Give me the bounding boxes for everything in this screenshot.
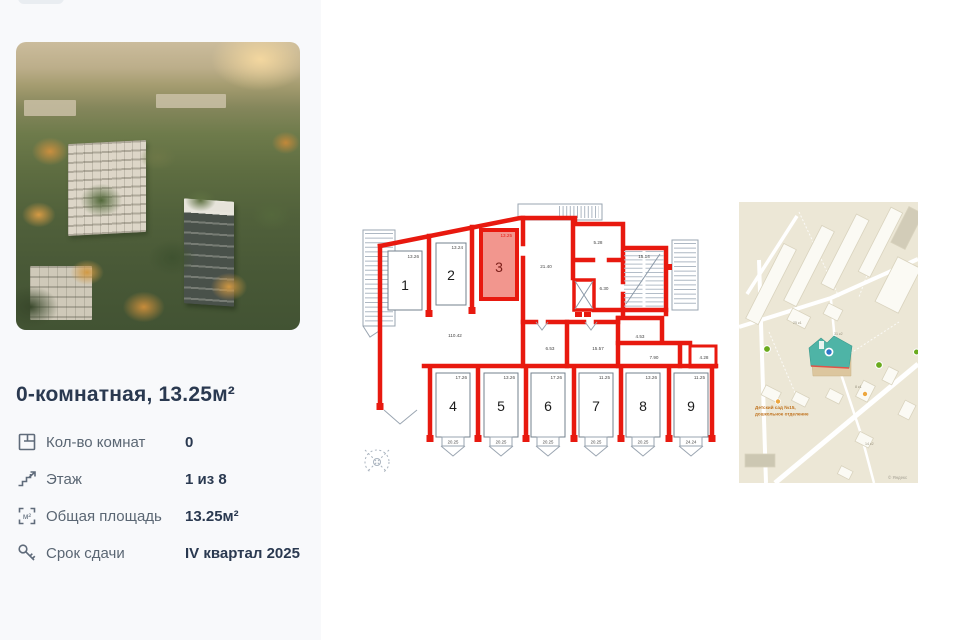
svg-text:6: 6 xyxy=(544,398,552,414)
photo-building-light xyxy=(68,140,146,236)
svg-text:6.30: 6.30 xyxy=(600,286,609,291)
svg-text:14 к2: 14 к2 xyxy=(865,442,874,446)
photo-distant-building xyxy=(24,100,76,116)
detail-label: Кол-во комнат xyxy=(46,434,145,451)
svg-text:4.53: 4.53 xyxy=(636,334,645,339)
svg-text:Детский сад №15,: Детский сад №15, xyxy=(755,404,796,410)
svg-text:110.42: 110.42 xyxy=(448,333,462,338)
svg-text:7: 7 xyxy=(592,398,600,414)
location-map[interactable]: Детский сад №15, дошкольное отделение 31… xyxy=(739,202,918,483)
detail-label: Общая площадь xyxy=(46,508,162,525)
area-icon: м² xyxy=(16,505,38,527)
photo-distant-building xyxy=(156,94,226,108)
svg-text:1: 1 xyxy=(401,277,409,293)
svg-text:13.26: 13.26 xyxy=(408,254,420,259)
svg-text:7.90: 7.90 xyxy=(650,355,659,360)
detail-row-rooms: Кол-во комнат 0 xyxy=(16,430,316,454)
svg-text:20.25: 20.25 xyxy=(638,440,649,445)
svg-text:8: 8 xyxy=(639,398,647,414)
detail-value: 13.25м² xyxy=(185,508,239,525)
detail-row-floor: Этаж 1 из 8 xyxy=(16,467,316,491)
svg-text:17.26: 17.26 xyxy=(551,375,563,380)
svg-text:4: 4 xyxy=(449,398,457,414)
key-icon xyxy=(16,542,38,564)
svg-text:5.28: 5.28 xyxy=(594,240,603,245)
page-title: 0-комнатная, 13.25м² xyxy=(16,383,316,407)
stair-core-icon xyxy=(626,251,660,307)
partial-button[interactable] xyxy=(18,0,64,4)
svg-text:31 к2: 31 к2 xyxy=(834,332,843,336)
rooms-icon xyxy=(16,431,38,453)
map-attribution: © Яндекс xyxy=(888,475,908,480)
detail-value: IV квартал 2025 xyxy=(185,545,300,562)
svg-text:20.25: 20.25 xyxy=(591,440,602,445)
svg-text:5: 5 xyxy=(497,398,505,414)
svg-text:25 к1: 25 к1 xyxy=(793,321,802,325)
svg-text:21.40: 21.40 xyxy=(540,264,552,269)
svg-text:13.26: 13.26 xyxy=(646,375,658,380)
svg-text:24.24: 24.24 xyxy=(686,440,697,445)
listing-info-panel: 0-комнатная, 13.25м² Кол-во комнат 0 Эта… xyxy=(0,0,321,640)
listing-photo[interactable] xyxy=(16,42,300,330)
svg-text:13.25: 13.25 xyxy=(501,233,513,238)
svg-text:15.57: 15.57 xyxy=(592,346,604,351)
floorplan[interactable]: 1 2 3 4 5 6 7 8 9 13.26 13.24 13.25 17.2… xyxy=(360,198,732,472)
detail-label: Этаж xyxy=(46,471,82,488)
svg-text:13.24: 13.24 xyxy=(452,245,464,250)
photo-building-small xyxy=(30,266,92,320)
svg-text:3: 3 xyxy=(495,259,503,275)
detail-label: Срок сдачи xyxy=(46,545,125,562)
external-stair-right-icon xyxy=(672,240,698,310)
svg-text:20.25: 20.25 xyxy=(496,440,507,445)
detail-value: 0 xyxy=(185,434,193,451)
svg-text:6.53: 6.53 xyxy=(546,346,555,351)
svg-text:9: 9 xyxy=(687,398,695,414)
detail-value: 1 из 8 xyxy=(185,471,227,488)
compass-icon xyxy=(365,450,389,472)
svg-text:11.25: 11.25 xyxy=(694,375,706,380)
stairs-icon xyxy=(16,468,38,490)
svg-text:11.25: 11.25 xyxy=(599,375,611,380)
svg-text:2: 2 xyxy=(447,267,455,283)
svg-text:17.26: 17.26 xyxy=(456,375,468,380)
svg-text:дошкольное отделение: дошкольное отделение xyxy=(755,412,809,417)
svg-text:8 к1: 8 к1 xyxy=(855,385,862,389)
detail-row-area: м² Общая площадь 13.25м² xyxy=(16,504,316,528)
svg-text:15.14: 15.14 xyxy=(638,254,650,259)
detail-row-deadline: Срок сдачи IV квартал 2025 xyxy=(16,541,316,565)
svg-text:м²: м² xyxy=(23,512,32,521)
svg-text:20.25: 20.25 xyxy=(543,440,554,445)
svg-text:13.26: 13.26 xyxy=(504,375,516,380)
svg-text:4.28: 4.28 xyxy=(700,355,709,360)
svg-text:20.25: 20.25 xyxy=(448,440,459,445)
photo-building-dark xyxy=(184,198,234,306)
